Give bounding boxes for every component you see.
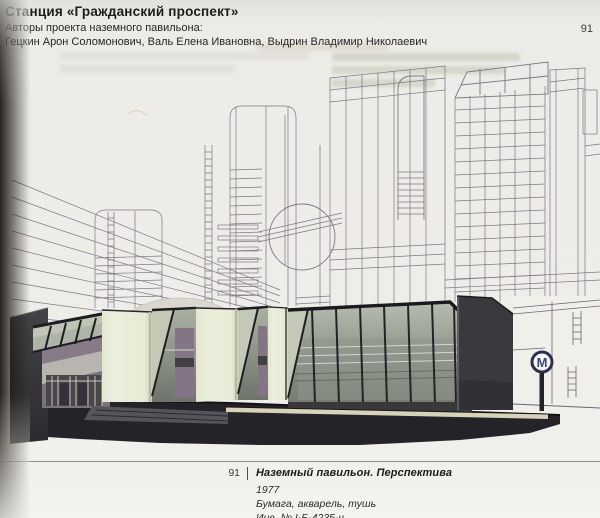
authors-subtitle: Авторы проекта наземного павильона: <box>5 22 427 35</box>
caption-year: 1977 <box>256 483 452 497</box>
pale-pylon <box>102 310 152 402</box>
caption-divider-rule <box>0 461 600 462</box>
book-page: Станция «Гражданский проспект» Авторы пр… <box>0 0 600 518</box>
glazed-hall <box>288 302 472 414</box>
caption-inventory: Инв. № I-Б-4235-ч <box>256 511 452 518</box>
page-header: Станция «Гражданский проспект» Авторы пр… <box>5 4 427 49</box>
page-number: 91 <box>581 23 593 35</box>
glass-bay <box>152 308 196 402</box>
architectural-drawing: М <box>0 50 600 462</box>
station-title: Станция «Гражданский проспект» <box>5 4 427 19</box>
metro-logo-letter: М <box>537 355 548 370</box>
caption-title: Наземный павильон. Перспектива <box>256 466 452 480</box>
background-wall-right <box>513 296 600 408</box>
pale-pylon <box>268 307 288 400</box>
figure-number: 91 <box>210 466 240 479</box>
entrance-doors <box>46 375 102 406</box>
dark-corner-pylon <box>457 296 513 410</box>
caption-vertical-bar <box>247 467 248 480</box>
pale-pylon <box>196 308 238 402</box>
authors-line: Гецкин Арон Соломонович, Валь Елена Иван… <box>5 36 427 49</box>
figure-caption: 91 Наземный павильон. Перспектива 1977 Б… <box>210 466 452 518</box>
caption-medium: Бумага, акварель, тушь <box>256 497 452 511</box>
glass-bay <box>238 307 268 400</box>
